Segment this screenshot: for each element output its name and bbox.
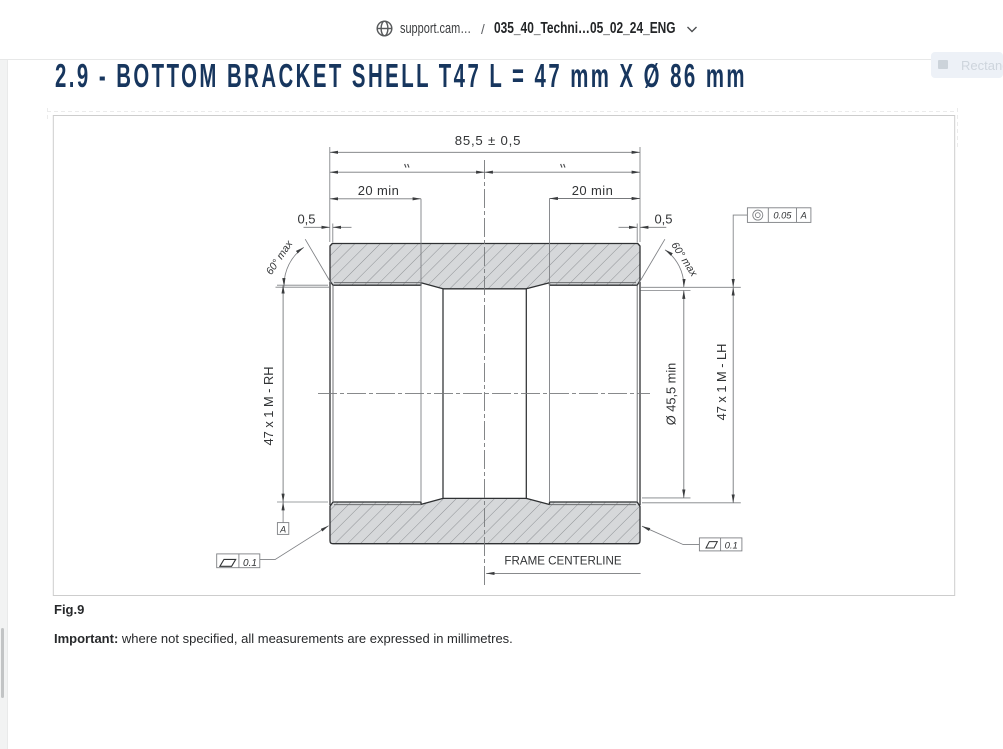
svg-text:47 x 1 M - LH: 47 x 1 M - LH bbox=[714, 344, 729, 421]
svg-text:20 min: 20 min bbox=[572, 183, 613, 198]
svg-text:47 x 1 M - RH: 47 x 1 M - RH bbox=[261, 367, 276, 446]
svg-text:FRAME CENTERLINE: FRAME CENTERLINE bbox=[504, 554, 622, 567]
svg-text:20 min: 20 min bbox=[358, 183, 399, 198]
svg-text:0.1: 0.1 bbox=[243, 558, 257, 569]
svg-text:0.05: 0.05 bbox=[773, 211, 792, 221]
svg-text:A: A bbox=[279, 524, 286, 534]
svg-text:Ø 45,5 min: Ø 45,5 min bbox=[664, 363, 679, 426]
svg-text:85,5 ± 0,5: 85,5 ± 0,5 bbox=[455, 133, 522, 148]
svg-text:0,5: 0,5 bbox=[654, 211, 672, 226]
svg-text:0.1: 0.1 bbox=[725, 540, 738, 551]
svg-text:0,5: 0,5 bbox=[297, 211, 315, 226]
svg-text:A: A bbox=[800, 211, 807, 221]
